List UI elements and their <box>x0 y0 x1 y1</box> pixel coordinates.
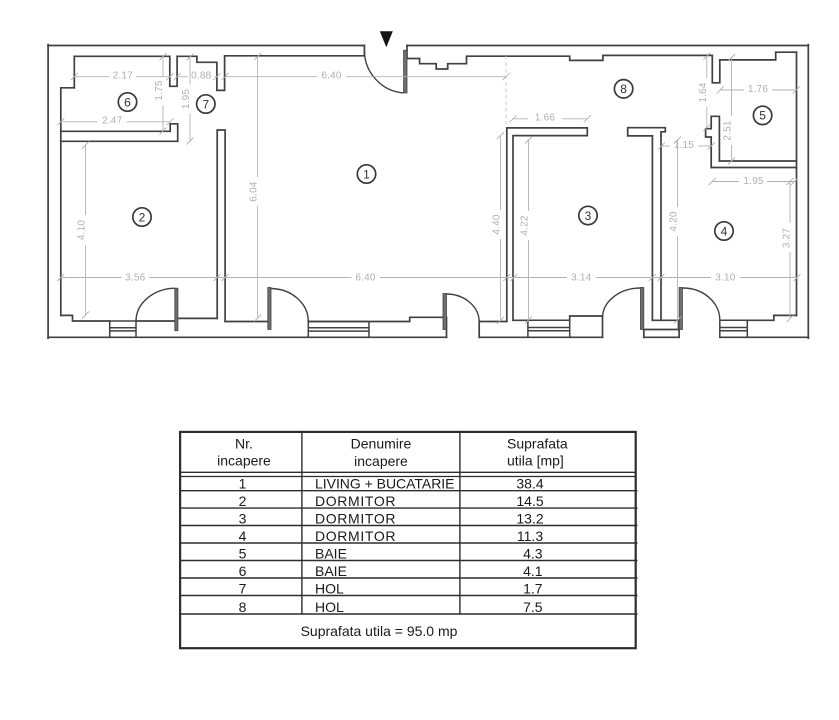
svg-text:0.88: 0.88 <box>191 71 212 82</box>
svg-text:2.51: 2.51 <box>723 120 734 141</box>
svg-text:6.04: 6.04 <box>249 181 260 202</box>
svg-text:1: 1 <box>363 167 370 181</box>
svg-text:2: 2 <box>239 493 247 509</box>
svg-text:2.17: 2.17 <box>113 71 134 82</box>
svg-text:8: 8 <box>239 599 247 615</box>
svg-text:Nr.: Nr. <box>235 436 253 452</box>
svg-text:BAIE: BAIE <box>315 563 347 579</box>
svg-text:4.20: 4.20 <box>669 211 680 232</box>
svg-text:7: 7 <box>239 580 247 596</box>
svg-text:38.4: 38.4 <box>516 476 543 492</box>
svg-text:4: 4 <box>721 224 728 238</box>
svg-text:3.27: 3.27 <box>782 228 793 249</box>
svg-text:1.76: 1.76 <box>748 84 769 95</box>
svg-text:3.14: 3.14 <box>571 273 592 284</box>
svg-text:5: 5 <box>759 109 766 123</box>
svg-text:1: 1 <box>239 476 247 492</box>
svg-text:6.40: 6.40 <box>355 272 376 283</box>
svg-text:4.10: 4.10 <box>77 220 88 241</box>
svg-text:1.95: 1.95 <box>181 89 192 110</box>
svg-text:HOL: HOL <box>315 580 344 596</box>
svg-text:6: 6 <box>239 563 247 579</box>
svg-text:Denumire: Denumire <box>351 436 412 452</box>
svg-text:1.15: 1.15 <box>674 140 695 151</box>
svg-text:11.3: 11.3 <box>517 528 543 544</box>
svg-text:BAIE: BAIE <box>315 545 347 561</box>
svg-text:3.56: 3.56 <box>125 272 146 283</box>
svg-text:DORMITOR: DORMITOR <box>315 493 396 509</box>
svg-text:2: 2 <box>139 210 146 224</box>
svg-text:14.5: 14.5 <box>516 493 543 509</box>
svg-text:7: 7 <box>202 97 209 111</box>
svg-text:13.2: 13.2 <box>516 510 543 526</box>
svg-text:1.64: 1.64 <box>698 82 709 103</box>
svg-text:3.10: 3.10 <box>715 273 736 284</box>
svg-text:7.5: 7.5 <box>523 599 543 615</box>
svg-text:5: 5 <box>239 545 247 561</box>
svg-text:4.1: 4.1 <box>523 563 543 579</box>
svg-text:DORMITOR: DORMITOR <box>315 510 396 526</box>
svg-text:4: 4 <box>239 528 247 544</box>
svg-text:6: 6 <box>124 95 131 109</box>
svg-text:Suprafata: Suprafata <box>507 436 568 452</box>
svg-text:4.40: 4.40 <box>492 214 503 235</box>
svg-text:4.22: 4.22 <box>520 215 531 236</box>
svg-text:LIVING + BUCATARIE: LIVING + BUCATARIE <box>315 476 455 492</box>
svg-text:Suprafata utila = 95.0 mp: Suprafata utila = 95.0 mp <box>301 623 458 639</box>
svg-text:DORMITOR: DORMITOR <box>315 528 396 544</box>
svg-text:8: 8 <box>620 82 627 96</box>
svg-text:incapere: incapere <box>354 453 408 469</box>
svg-text:1.95: 1.95 <box>743 176 764 187</box>
svg-text:1.66: 1.66 <box>535 113 556 124</box>
svg-text:2.47: 2.47 <box>102 116 123 127</box>
svg-text:HOL: HOL <box>315 599 344 615</box>
svg-text:3: 3 <box>585 209 592 223</box>
svg-text:3: 3 <box>239 510 247 526</box>
svg-text:6.40: 6.40 <box>321 71 342 82</box>
svg-text:incapere: incapere <box>217 453 271 469</box>
svg-text:utila [mp]: utila [mp] <box>507 453 564 469</box>
svg-text:1.75: 1.75 <box>154 80 165 101</box>
svg-text:1.7: 1.7 <box>523 580 543 596</box>
svg-text:4.3: 4.3 <box>523 545 543 561</box>
